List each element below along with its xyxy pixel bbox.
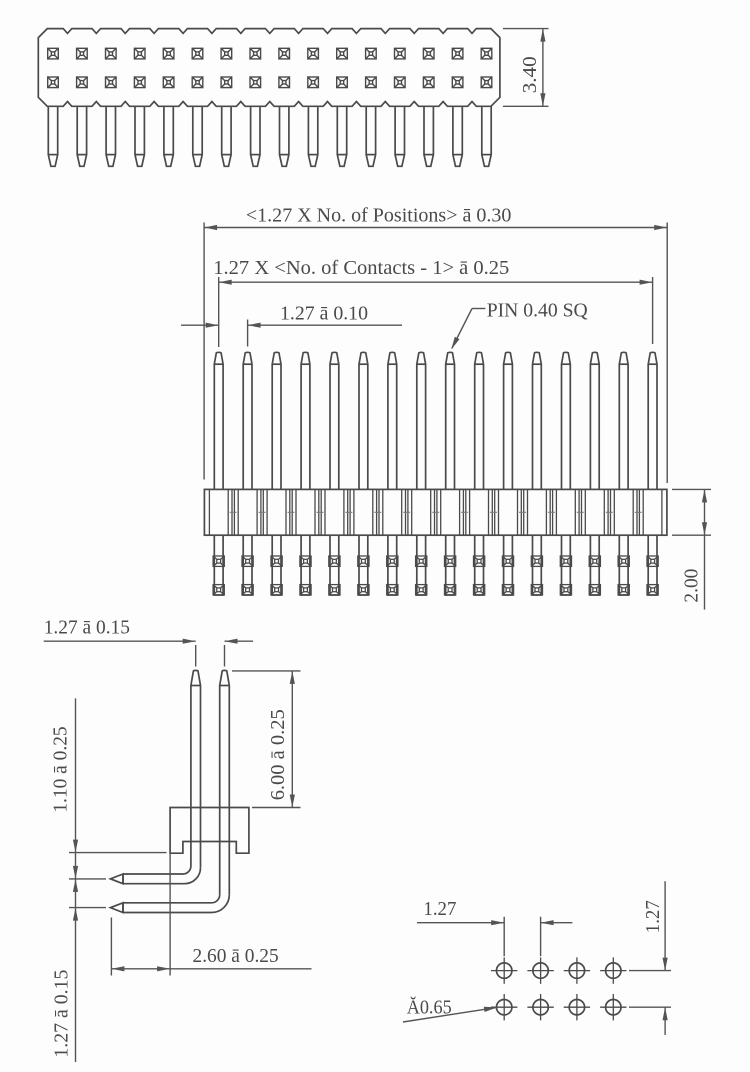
- svg-text:Ă0.65: Ă0.65: [407, 996, 452, 1019]
- svg-text:6.00 ā 0.25: 6.00 ā 0.25: [267, 709, 289, 800]
- svg-text:1.27 X <No. of Contacts - 1> ā: 1.27 X <No. of Contacts - 1> ā 0.25: [213, 257, 509, 279]
- svg-text:1.27 ā 0.10: 1.27 ā 0.10: [280, 303, 368, 325]
- svg-text:PIN 0.40 SQ: PIN 0.40 SQ: [487, 300, 589, 322]
- svg-text:3.40: 3.40: [519, 56, 541, 93]
- svg-text:1.27 ā 0.15: 1.27 ā 0.15: [44, 617, 130, 639]
- svg-text:1.10 ā 0.25: 1.10 ā 0.25: [50, 726, 72, 812]
- svg-text:1.27: 1.27: [423, 898, 456, 920]
- svg-text:1.27: 1.27: [642, 900, 664, 933]
- svg-text:2.60 ā 0.25: 2.60 ā 0.25: [193, 945, 279, 967]
- svg-text:<1.27 X No. of Positions> ā 0.: <1.27 X No. of Positions> ā 0.30: [246, 204, 512, 226]
- svg-text:1.27 ā 0.15: 1.27 ā 0.15: [51, 970, 73, 1058]
- svg-text:2.00: 2.00: [681, 569, 703, 603]
